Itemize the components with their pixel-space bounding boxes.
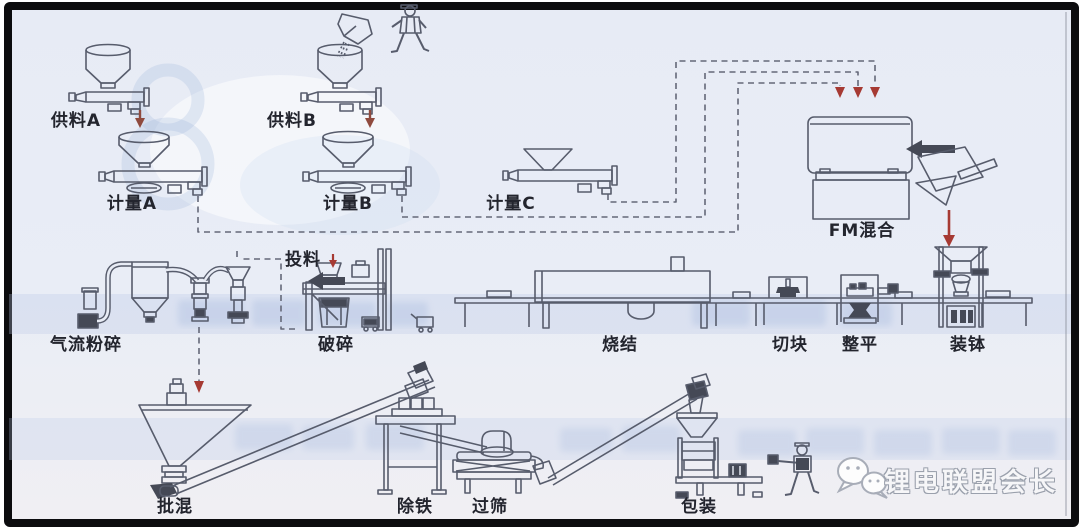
meter-c-drawing (503, 149, 617, 194)
label-feeding: 投料 (285, 251, 329, 270)
fm-mixer-drawing (808, 117, 997, 219)
label-batch-mix: 批混 (139, 498, 211, 517)
label-iron-removal: 除铁 (379, 498, 451, 517)
label-meter-a: 计量A (94, 195, 170, 214)
feeding-arrow (329, 254, 337, 268)
metering-arrowheads (835, 87, 880, 98)
label-crush: 破碎 (300, 336, 372, 355)
label-meter-c: 计量C (473, 195, 549, 214)
fm-to-sagger-arrow (943, 210, 955, 247)
label-fm-mix: FM混合 (812, 222, 912, 241)
label-jet-mill: 气流粉碎 (32, 336, 140, 355)
worker-top (391, 5, 429, 52)
wechat-icon (838, 458, 887, 498)
diagram-artwork (0, 0, 1080, 528)
label-level: 整平 (824, 336, 896, 355)
label-sagger-load: 装钵 (932, 336, 1004, 355)
label-meter-b: 计量B (310, 195, 386, 214)
label-sieve: 过筛 (454, 498, 526, 517)
label-sinter: 烧结 (584, 336, 656, 355)
label-cut: 切块 (754, 336, 826, 355)
process-flow-diagram: 供料A 计量A 供料B 计量B 计量C FM混合 气流粉碎 投料 破碎 烧结 切… (0, 0, 1080, 528)
label-feed-a: 供料A (38, 112, 114, 131)
label-feed-b: 供料B (254, 112, 330, 131)
label-pack: 包装 (663, 498, 735, 517)
watermark-text: 锂电联盟会长 (884, 462, 1064, 499)
pouring-bag (337, 14, 372, 58)
jetmill-to-batchmix-dashed (194, 327, 204, 393)
